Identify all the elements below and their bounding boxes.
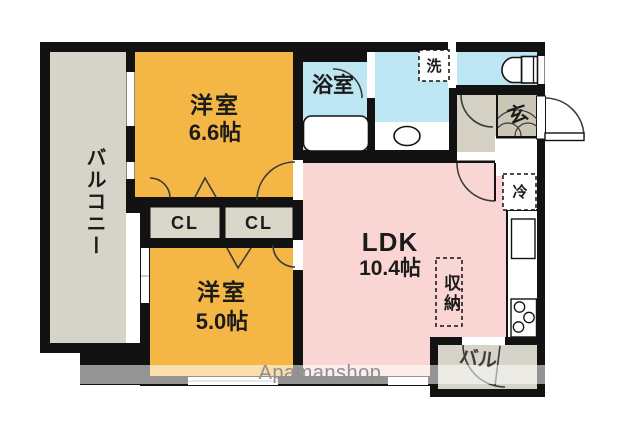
doorway-room2 (293, 240, 303, 270)
kitchen-counter (507, 210, 538, 338)
floorplan-image: バルコニー 洋室 6.6帖 浴室 洗 玄 冷 LDK 10.4帖 収納 CL C… (0, 0, 640, 427)
western-room-5-0-name: 洋室 (151, 279, 293, 305)
entrance-door-leaf (545, 133, 584, 141)
toilet (502, 57, 538, 84)
western-room-6-6-size: 6.6帖 (137, 120, 293, 145)
doorway-small-balcony (462, 337, 505, 345)
storage-label: 収納 (438, 266, 460, 322)
closet2-label: CL (226, 213, 292, 234)
window-balcony-1 (127, 72, 135, 126)
ldk-size: 10.4帖 (330, 257, 450, 281)
kitchen-sink (512, 219, 536, 259)
watermark-text: Apamanshop (225, 362, 415, 385)
stove (511, 299, 537, 337)
western-room-6-6-name: 洋室 (137, 92, 293, 118)
entrance-step-floor (495, 136, 537, 176)
fridge-label: 冷 (504, 184, 536, 201)
entrance-door-arc (545, 98, 584, 137)
doorway-room1 (293, 160, 303, 200)
entrance-door-jamb (537, 96, 546, 139)
closet1-label: CL (151, 213, 219, 234)
balcony-label: バルコニー (79, 137, 105, 267)
ldk-name: LDK (330, 228, 450, 258)
bathroom-label: 浴室 (299, 74, 367, 98)
western-room-5-0-size: 5.0帖 (151, 309, 293, 334)
washbasin (394, 127, 420, 146)
washer-label: 洗 (419, 58, 449, 75)
window-toilet (538, 56, 545, 84)
bathtub (304, 116, 369, 151)
window-balcony-2 (127, 162, 135, 179)
